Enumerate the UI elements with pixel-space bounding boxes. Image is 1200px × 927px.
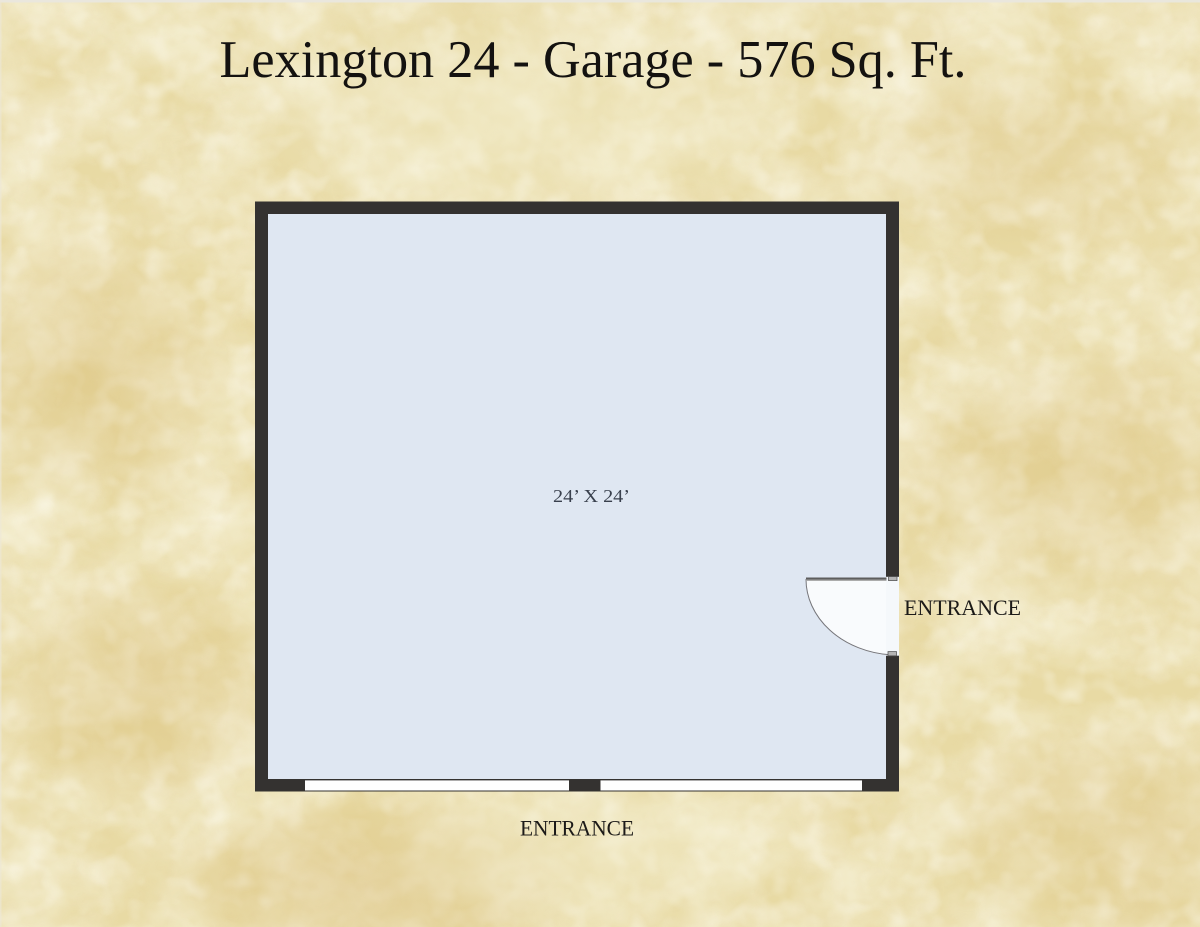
svg-text:ENTRANCE: ENTRANCE [520,816,634,841]
svg-text:Lexington 24 - Garage - 576 Sq: Lexington 24 - Garage - 576 Sq. Ft. [220,31,967,89]
svg-text:ENTRANCE: ENTRANCE [904,595,1021,620]
svg-text:24’ X 24’: 24’ X 24’ [553,486,630,506]
